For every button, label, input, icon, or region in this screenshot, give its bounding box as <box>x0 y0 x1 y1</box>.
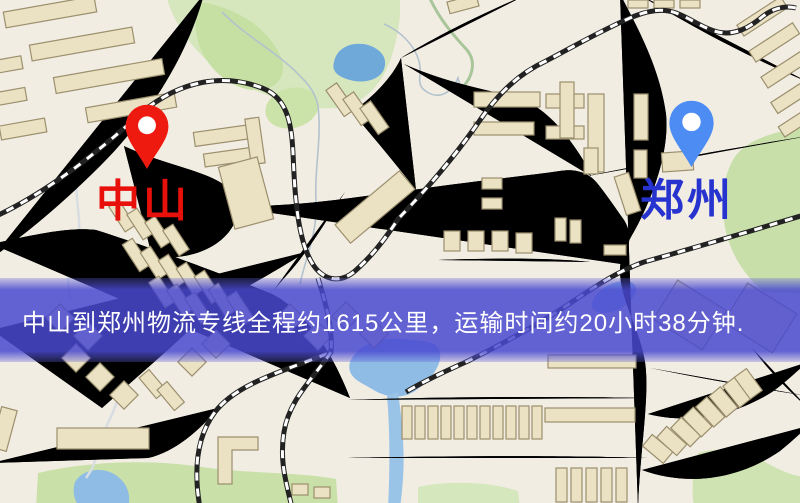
route-info-banner: 中山到郑州物流专线全程约1615公里，运输时间约20小时38分钟. <box>0 278 800 362</box>
destination-pin-body <box>669 101 713 167</box>
origin-pin[interactable] <box>122 101 172 171</box>
destination-pin[interactable] <box>665 97 718 169</box>
origin-pin-hole <box>138 116 156 134</box>
origin-pin-body <box>126 105 169 169</box>
origin-city-label: 中山 <box>96 180 190 224</box>
destination-city-label: 郑州 <box>640 179 734 223</box>
map-screenshot: 中山 郑州 中山到郑州物流专线全程约1615公里，运输时间约20小时38分钟. <box>0 0 800 503</box>
destination-pin-hole <box>682 113 700 131</box>
route-info-text: 中山到郑州物流专线全程约1615公里，运输时间约20小时38分钟. <box>22 303 744 338</box>
map-canvas[interactable] <box>0 0 800 503</box>
